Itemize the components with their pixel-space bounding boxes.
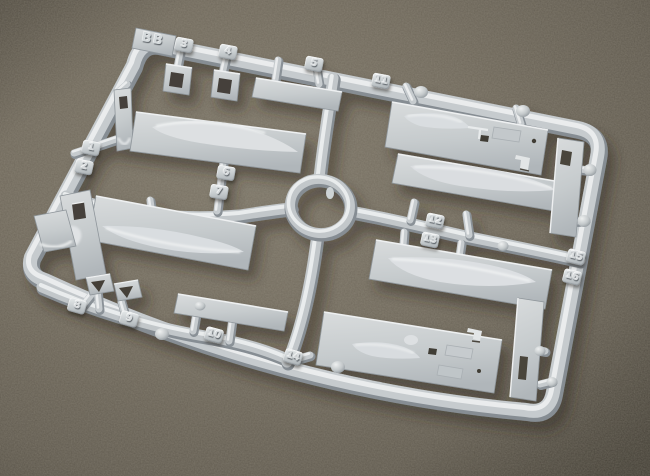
part-tab-6: 6 (216, 165, 236, 182)
small-fin (114, 88, 133, 151)
sprue-letter-text: BB (141, 30, 166, 47)
part-tab-7: 7 (209, 184, 229, 201)
small-bracket-b (211, 70, 240, 101)
sprue-illustration (0, 0, 650, 476)
small-bracket-a (163, 64, 192, 95)
cleat-a (86, 274, 114, 295)
cleat-b (114, 280, 142, 301)
sprue-photo: BB 1 2 3 4 5 6 7 8 9 10 11 12 13 14 15 1… (0, 0, 650, 476)
